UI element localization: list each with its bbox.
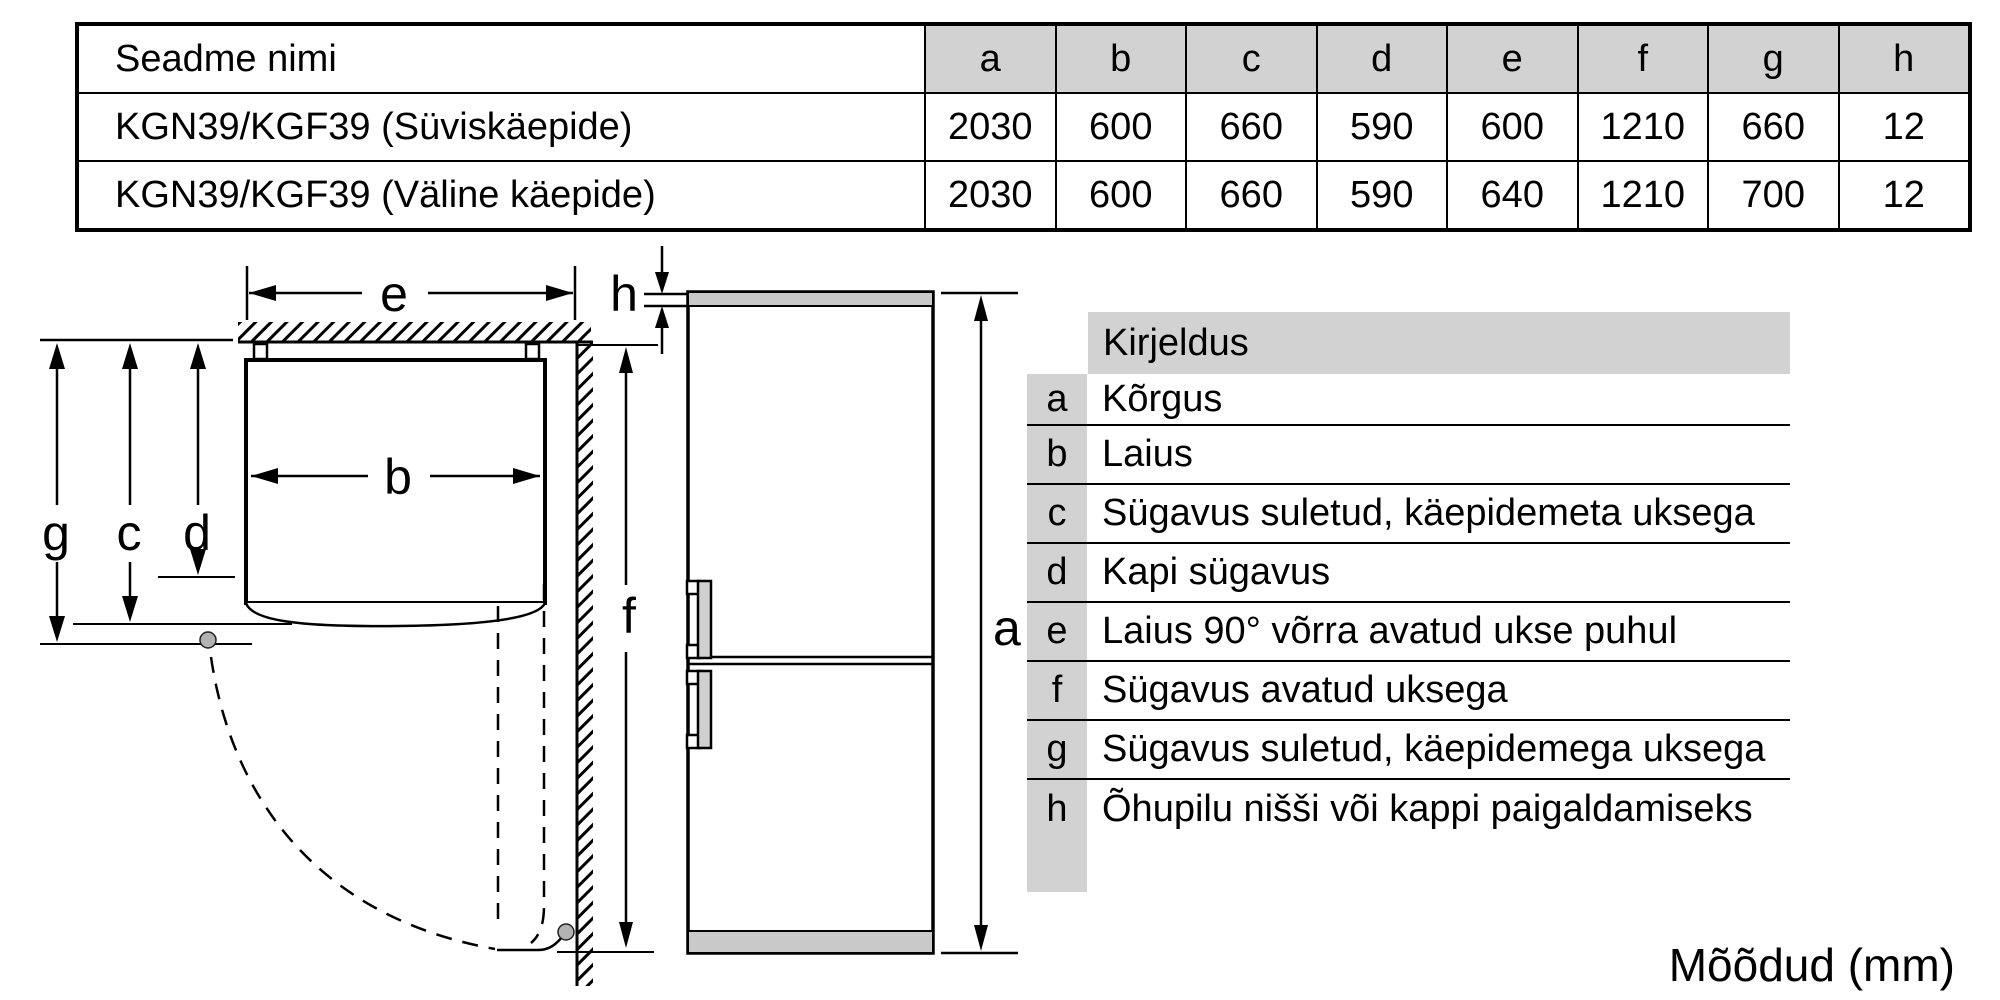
side-body	[688, 292, 933, 953]
value-cell: 1210	[1578, 93, 1709, 161]
rear-wall-hatch	[238, 322, 593, 342]
installation-diagram: e h b	[30, 240, 1030, 1000]
value-cell: 2030	[925, 93, 1056, 161]
legend-key: h	[1027, 788, 1087, 831]
value-cell: 660	[1708, 93, 1839, 161]
legend-desc: Laius 90° võrra avatud ukse puhul	[1087, 610, 1790, 653]
legend-row-b: b Laius	[1027, 426, 1790, 485]
spec-col-c: c	[1186, 24, 1317, 93]
value-cell: 12	[1839, 93, 1971, 161]
value-cell: 700	[1708, 161, 1839, 230]
hinge-right	[526, 344, 539, 359]
dimension-e: e	[247, 266, 575, 322]
top-band	[688, 292, 933, 306]
value-cell: 590	[1317, 161, 1448, 230]
legend-key: c	[1027, 492, 1087, 535]
bottom-band	[688, 931, 933, 953]
dimension-a: a	[941, 293, 1021, 953]
spec-col-g: g	[1708, 24, 1839, 93]
label-h: h	[610, 266, 638, 322]
model-name: KGN39/KGF39 (Väline käepide)	[77, 161, 925, 230]
label-b: b	[384, 449, 412, 505]
legend-desc: Õhupilu nišši või kappi paigaldamiseks	[1087, 788, 1790, 831]
model-name: KGN39/KGF39 (Süviskäepide)	[77, 93, 925, 161]
spec-col-a: a	[925, 24, 1056, 93]
value-cell: 600	[1447, 93, 1578, 161]
legend-header: Kirjeldus	[1088, 312, 1790, 374]
spec-table-name-header: Seadme nimi	[77, 24, 925, 93]
spec-col-d: d	[1317, 24, 1448, 93]
legend-table: Kirjeldus a Kõrgus b Laius c Sügavus sul…	[1027, 312, 1790, 892]
value-cell: 1210	[1578, 161, 1709, 230]
spec-table-row-1: KGN39/KGF39 (Süviskäepide) 2030 600 660 …	[77, 93, 1970, 161]
legend-key: g	[1027, 728, 1087, 771]
legend-row-a: a Kõrgus	[1027, 374, 1790, 426]
legend-row-c: c Sügavus suletud, käepidemeta uksega	[1027, 485, 1790, 544]
value-cell: 660	[1186, 93, 1317, 161]
value-cell: 600	[1056, 161, 1187, 230]
legend-row-f: f Sügavus avatud uksega	[1027, 662, 1790, 721]
value-cell: 590	[1317, 93, 1448, 161]
legend-key: f	[1027, 669, 1087, 712]
door-closed	[246, 603, 545, 626]
side-wall-hatch	[577, 342, 593, 986]
label-a: a	[993, 600, 1021, 656]
legend-row-h: h Õhupilu nišši või kappi paigaldamiseks	[1027, 780, 1790, 839]
value-cell: 600	[1056, 93, 1187, 161]
spec-table: Seadme nimi a b c d e f g h KGN39/KGF39 …	[75, 22, 1972, 232]
legend-desc: Kapi sügavus	[1087, 551, 1790, 594]
legend-desc: Sügavus suletud, käepidemeta uksega	[1087, 492, 1790, 535]
dimension-h: h	[610, 246, 687, 354]
hinge-left	[254, 344, 267, 359]
legend-row-e: e Laius 90° võrra avatud ukse puhul	[1027, 603, 1790, 662]
door-swing	[211, 584, 566, 950]
label-c: c	[117, 505, 142, 561]
legend-desc: Laius	[1087, 433, 1790, 476]
legend-key: e	[1027, 610, 1087, 653]
legend-desc: Kõrgus	[1087, 378, 1790, 421]
value-cell: 12	[1839, 161, 1971, 230]
value-cell: 640	[1447, 161, 1578, 230]
label-f: f	[622, 588, 636, 644]
legend-desc: Sügavus suletud, käepidemega uksega	[1087, 728, 1790, 771]
spec-col-h: h	[1839, 24, 1971, 93]
label-e: e	[380, 266, 408, 322]
spec-col-e: e	[1447, 24, 1578, 93]
dimension-sheet: Seadme nimi a b c d e f g h KGN39/KGF39 …	[0, 0, 2000, 1000]
value-cell: 660	[1186, 161, 1317, 230]
value-cell: 2030	[925, 161, 1056, 230]
door-tip-dot	[558, 924, 574, 940]
hinge-pivot-dot	[200, 632, 216, 648]
label-g: g	[42, 505, 70, 561]
legend-key: a	[1027, 378, 1087, 421]
legend-row-d: d Kapi sügavus	[1027, 544, 1790, 603]
spec-table-header-row: Seadme nimi a b c d e f g h	[77, 24, 1970, 93]
legend-key: b	[1027, 433, 1087, 476]
units-label: Mõõdud (mm)	[1669, 938, 1955, 992]
spec-table-row-2: KGN39/KGF39 (Väline käepide) 2030 600 66…	[77, 161, 1970, 230]
legend-desc: Sügavus avatud uksega	[1087, 669, 1790, 712]
legend-row-g: g Sügavus suletud, käepidemega uksega	[1027, 721, 1790, 780]
dimension-f: f	[557, 345, 658, 952]
fridge-side-view	[687, 292, 933, 953]
spec-col-b: b	[1056, 24, 1187, 93]
spec-col-f: f	[1578, 24, 1709, 93]
legend-key: d	[1027, 551, 1087, 594]
